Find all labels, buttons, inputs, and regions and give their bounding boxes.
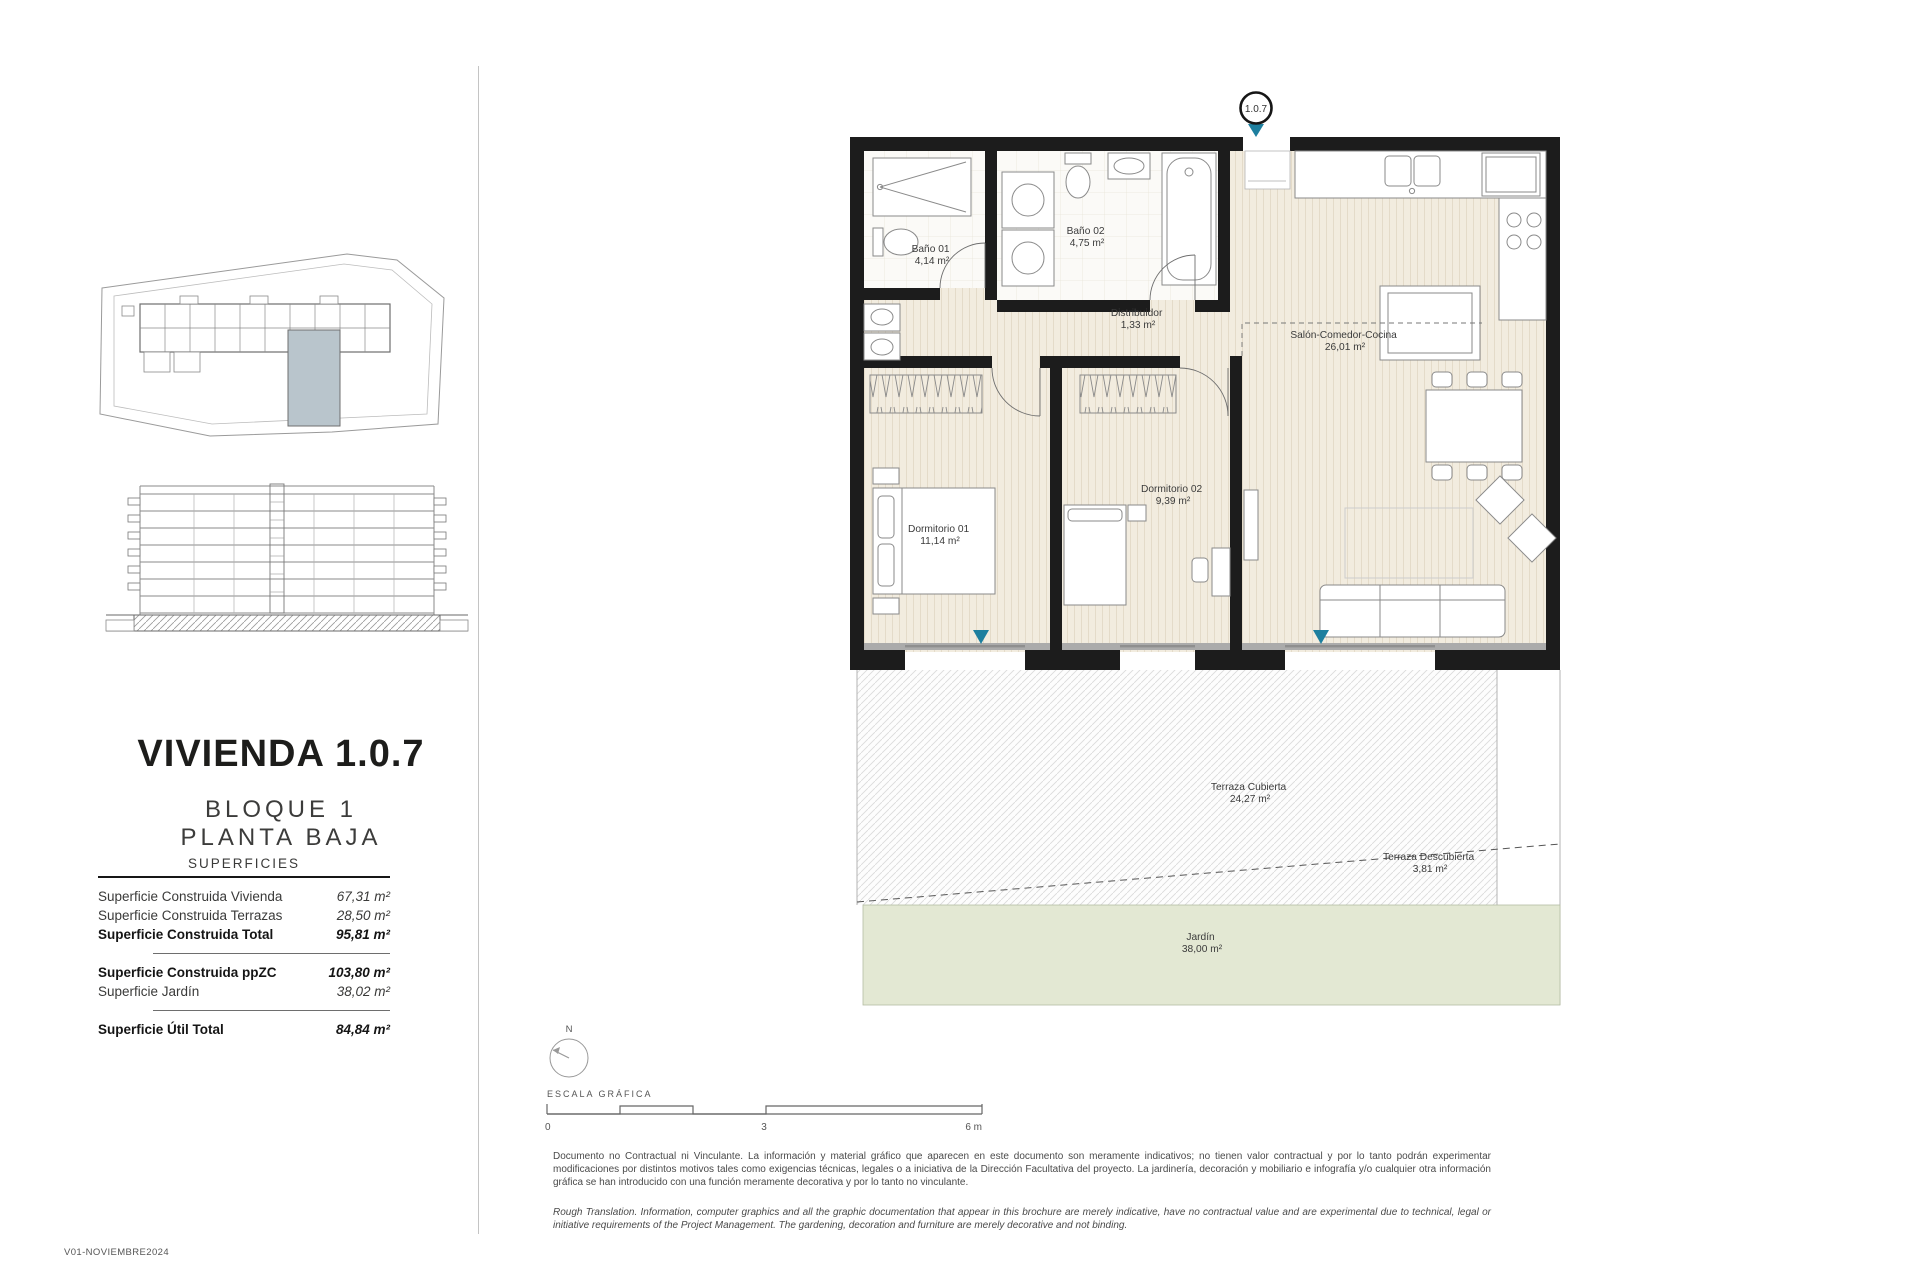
- row-label: Superficie Construida Total: [98, 925, 273, 944]
- version-note: V01-NOVIEMBRE2024: [64, 1247, 169, 1258]
- disclaimer-spanish: Documento no Contractual ni Vinculante. …: [553, 1150, 1491, 1189]
- unit-badge-label: 1.0.7: [1245, 104, 1268, 115]
- tv-unit: [1244, 490, 1258, 560]
- site-plan-unit-highlight: [288, 330, 340, 426]
- table-row: Superficie Útil Total 84,84 m²: [98, 1020, 390, 1039]
- site-plan-diagram: [92, 246, 460, 446]
- table-separator: [153, 1010, 390, 1011]
- washbasin: [864, 333, 900, 360]
- scale-block: N ESCALA GRÁFICA 0 3 6 m: [545, 1018, 1015, 1138]
- subtitle-block: BLOQUE 1: [85, 796, 477, 824]
- row-label: Superficie Construida Vivienda: [98, 887, 282, 906]
- row-value: 95,81 m²: [336, 925, 390, 944]
- room-label-bathroom2: Baño 02 4,75 m²: [1067, 226, 1108, 249]
- chair: [1432, 465, 1452, 480]
- subtitle-floor: PLANTA BAJA: [85, 824, 477, 852]
- entrance-vestibule: [1245, 151, 1290, 189]
- washer: [1002, 172, 1054, 228]
- shower-tray: [873, 158, 971, 216]
- row-label: Superficie Útil Total: [98, 1020, 224, 1039]
- disclaimer-english: Rough Translation. Information, computer…: [553, 1206, 1491, 1232]
- row-value: 103,80 m²: [328, 963, 390, 982]
- elevation-diagram: [104, 468, 470, 678]
- dryer: [1002, 230, 1054, 286]
- room-label-bathroom1: Baño 01 4,14 m²: [912, 244, 953, 267]
- chair: [1467, 465, 1487, 480]
- row-value: 28,50 m²: [337, 906, 390, 925]
- row-value: 38,02 m²: [337, 982, 390, 1001]
- wardrobe: [1080, 375, 1176, 413]
- table-row: Superficie Construida ppZC 103,80 m²: [98, 963, 390, 982]
- scale-tick-3: 3: [761, 1122, 767, 1133]
- page-title: VIVIENDA 1.0.7: [85, 733, 477, 776]
- bathtub: [1162, 153, 1216, 285]
- brochure-page: VIVIENDA 1.0.7 BLOQUE 1 PLANTA BAJA SUPE…: [0, 0, 1920, 1280]
- nightstand: [873, 598, 899, 614]
- nightstand: [1128, 505, 1146, 521]
- sidebar-divider: [478, 66, 479, 1234]
- chair: [1502, 372, 1522, 387]
- bedroom1-furniture: [870, 375, 995, 614]
- table-row: Superficie Construida Vivienda 67,31 m²: [98, 887, 390, 906]
- floor-plan: 1.0.7 Baño 01 4,14 m² Baño 02 4,75 m² Di…: [840, 60, 1580, 1010]
- covered-terrace: [857, 670, 1497, 905]
- scale-tick-0: 0: [545, 1122, 551, 1133]
- row-label: Superficie Construida ppZC: [98, 963, 277, 982]
- entrance-marker-icon: [1248, 124, 1264, 137]
- areas-table-header: SUPERFICIES: [98, 856, 390, 878]
- toilet: [1065, 153, 1091, 164]
- table-separator: [153, 953, 390, 954]
- garden-area: [863, 905, 1560, 1005]
- washbasin: [864, 304, 900, 331]
- chair: [1502, 465, 1522, 480]
- scale-bar: [547, 1104, 982, 1114]
- scale-tick-6: 6 m: [965, 1122, 982, 1133]
- room-label-garden: Jardín 38,00 m²: [1182, 932, 1223, 955]
- scale-title: ESCALA GRÁFICA: [547, 1089, 653, 1099]
- north-label: N: [566, 1024, 573, 1035]
- row-value: 84,84 m²: [336, 1020, 390, 1039]
- row-label: Superficie Jardín: [98, 982, 199, 1001]
- table-row: Superficie Construida Total 95,81 m²: [98, 925, 390, 944]
- bed: [1064, 505, 1126, 605]
- toilet: [873, 228, 883, 256]
- desk: [1212, 548, 1230, 596]
- areas-table: SUPERFICIES Superficie Construida Vivien…: [98, 856, 390, 1039]
- sofa: [1320, 585, 1505, 637]
- nightstand: [873, 468, 899, 484]
- row-label: Superficie Construida Terrazas: [98, 906, 282, 925]
- page-subtitle: BLOQUE 1 PLANTA BAJA: [85, 796, 477, 852]
- chair: [1432, 372, 1452, 387]
- wardrobe: [870, 375, 982, 413]
- table-row: Superficie Jardín 38,02 m²: [98, 982, 390, 1001]
- dining-table: [1426, 390, 1522, 462]
- table-row: Superficie Construida Terrazas 28,50 m²: [98, 906, 390, 925]
- row-value: 67,31 m²: [337, 887, 390, 906]
- chair: [1192, 558, 1208, 582]
- chair: [1467, 372, 1487, 387]
